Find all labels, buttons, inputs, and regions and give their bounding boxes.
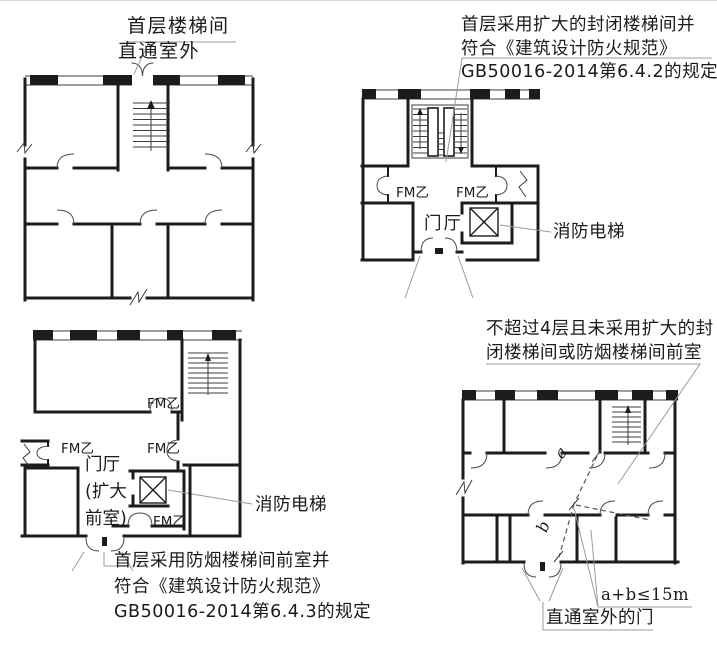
fire-door-label: FM乙 [147,437,180,457]
distance-rule-label: a+b≤15m [601,585,689,604]
door-swing-arcs [524,562,561,577]
fire-door-symbol [128,513,152,526]
break-mark [456,480,472,495]
fire-door-symbol [37,441,48,465]
floor-plan-bottom-left [22,330,252,571]
floor-plan-top-right [362,58,712,298]
fire-door-symbol [377,166,388,203]
break-mark [519,171,527,197]
fire-door-symbol [496,166,507,203]
callout-first-floor-stair-line2: 直通室外 [118,39,200,64]
callout-enlarged-enclosed-stair: 首层采用扩大的封闭楼梯间并 符合《建筑设计防火规范》 GB50016-2014第… [461,14,717,85]
fire-door-label: FM乙 [456,181,489,201]
stairs-icon [412,105,468,158]
stairs-icon [188,353,228,395]
break-mark [23,444,30,466]
door-swing-arcs [132,63,154,76]
fire-elevator-label: 消防电梯 [255,494,327,517]
lobby-label: 门厅 [424,213,463,236]
stairs-icon [133,100,170,151]
fire-elevator-label: 消防电梯 [553,221,625,244]
callout-four-storey-limit: 不超过4层且未采用扩大的封 闭楼梯间或防烟楼梯间前室 [486,317,714,365]
fire-door-label: FM乙 [396,181,429,201]
fire-door-label: FM乙 [147,392,180,412]
door-swing-arcs [57,154,222,168]
door-swing-arcs [528,501,663,515]
callout-smokeproof-stair-vestibule: 首层采用防烟楼梯间前室并 符合《建筑设计防火规范》 GB50016-2014第6… [114,549,371,626]
callout-first-floor-stair: 首层楼梯间 [127,14,230,39]
exit-door-label: 直通室外的门 [546,607,654,630]
stairs-icon [612,405,641,445]
door-swing-arcs [57,210,222,224]
leader-line [500,225,551,232]
fire-code-diagram-sheet: 首层楼梯间 直通室外 首层采用扩大的封闭楼梯间并 符合《建筑设计防火规范》 GB… [0,0,717,649]
lobby-enlarged-vestibule-label: 门厅 (扩大 前室) [85,452,127,533]
door-swing-arcs [421,238,457,254]
fire-door-label: FM乙 [153,510,186,530]
floor-plan-top-left [17,42,261,305]
elevator-icon [462,203,512,243]
leader-line [486,364,700,484]
